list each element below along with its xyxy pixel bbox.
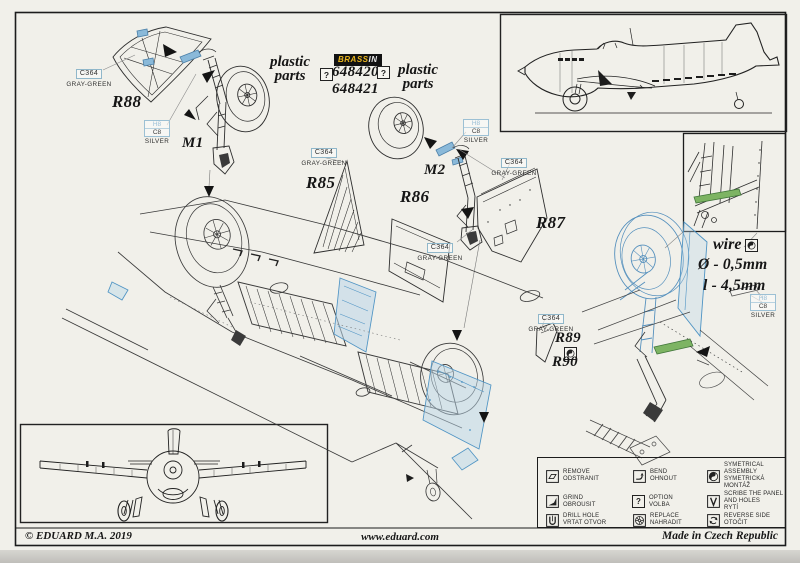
surrounding-structure (582, 290, 768, 465)
axle-pin-m1 (180, 50, 201, 63)
legend-box: REMOVEODSTRANIT BENDOHNOUT SYMETRICAL AS… (537, 457, 786, 528)
paint-callout-c364: C364 GRAY-GREEN (59, 62, 119, 88)
legend-item-reverse: REVERSE SIDEOTOČIT (706, 513, 783, 527)
legend-item-grind: GRINDOBROUSIT (545, 491, 632, 512)
paint-callout-c364: C364 GRAY-GREEN (294, 141, 354, 167)
wire-diameter: Ø - 0,5mm (698, 256, 767, 274)
gear-bay-detail-drawing (688, 141, 762, 229)
paint-callout-silver: H8C8 SILVER (142, 120, 172, 145)
paint-callout-c364: C364 GRAY-GREEN (410, 236, 470, 262)
scan-edge (0, 550, 800, 563)
legend-item-option: ? OPTIONVOLBA (632, 491, 706, 512)
installed-strut-drawing (207, 285, 246, 346)
arrow-icon (452, 330, 462, 341)
product-number-2: 648421 (332, 81, 379, 98)
wire-length: l - 4,5mm (703, 277, 766, 295)
part-label-m2: M2 (424, 162, 445, 179)
remove-icon (545, 469, 559, 483)
front-view-box (21, 425, 328, 523)
arrow-icon (163, 44, 177, 57)
instruction-sheet: plasticparts ? BRASSIN 648420 648421 ? p… (0, 0, 800, 563)
panel-bracket-marks (233, 249, 278, 266)
wire-note-title: wire (713, 236, 758, 254)
tail-section-lines (352, 443, 472, 519)
part-label-r87: R87 (536, 213, 565, 233)
wheel-drawing-2 (362, 91, 429, 164)
legend-item-symmetrical-assembly: SYMETRICAL ASSEMBLYSYMETRICKÁ MONTÁŽ (706, 462, 783, 490)
part-r88-door (113, 27, 211, 102)
aircraft-side-view (518, 23, 779, 113)
symmetrical-assembly-icon (706, 469, 720, 483)
product-number-1: 648420 (332, 64, 379, 81)
paint-callout-silver: H8C8 SILVER (461, 119, 491, 144)
arrow-icon (184, 109, 196, 120)
product-numbers: 648420 648421 (332, 64, 379, 98)
option-icon: ? (632, 495, 645, 508)
part-label-r86: R86 (400, 187, 429, 207)
part-label-m1: M1 (182, 135, 203, 152)
plastic-parts-note-left: plasticparts (260, 55, 320, 83)
aircraft-front-view (40, 429, 306, 521)
detail-box (684, 134, 786, 232)
installed-door-blue-1 (334, 278, 376, 352)
legend-item-bend: BENDOHNOUT (632, 462, 706, 490)
wire-part-installed (654, 339, 693, 354)
plastic-parts-note-right: plasticparts (388, 63, 448, 91)
grind-icon (545, 495, 559, 509)
footer-origin: Made in Czech Republic (662, 530, 778, 542)
paint-callout-c364: C364 GRAY-GREEN (521, 307, 581, 333)
installed-wheel-drawing (165, 188, 260, 296)
gear-bay-opening-1 (238, 282, 346, 346)
part-m1-strut (180, 49, 234, 187)
legend-item-scribe: SCRIBE THE PANEL AND HOLESRYTÍ (706, 491, 783, 512)
part-label-r88: R88 (112, 92, 141, 112)
paint-callout-silver: H8C8 SILVER (748, 294, 778, 319)
arrow-icon (204, 186, 214, 197)
scribe-icon (706, 495, 720, 509)
drill-icon (545, 513, 559, 527)
reverse-side-icon (706, 513, 720, 527)
symmetrical-assembly-icon (745, 239, 758, 252)
paint-callout-c364: C364 GRAY-GREEN (484, 151, 544, 177)
side-view-box (501, 15, 787, 132)
legend-item-drill: DRILL HOLEVRTAT OTVOR (545, 513, 632, 527)
replace-icon (632, 513, 646, 527)
part-label-r90: R90 (552, 354, 578, 371)
arrow-icon (202, 70, 215, 83)
part-label-r85: R85 (306, 173, 335, 193)
wire-part-detail (694, 189, 741, 203)
installed-door-blue-small (108, 282, 128, 300)
leader-lines (103, 55, 762, 328)
arrow-icon (424, 137, 437, 149)
legend-item-replace: REPLACENAHRADIT (632, 513, 706, 527)
legend-item-remove: REMOVEODSTRANIT (545, 462, 632, 490)
axle-pin-m2 (436, 142, 455, 156)
arrow-icon (461, 207, 474, 219)
bend-icon (632, 469, 646, 483)
arrow-icon (696, 346, 710, 357)
